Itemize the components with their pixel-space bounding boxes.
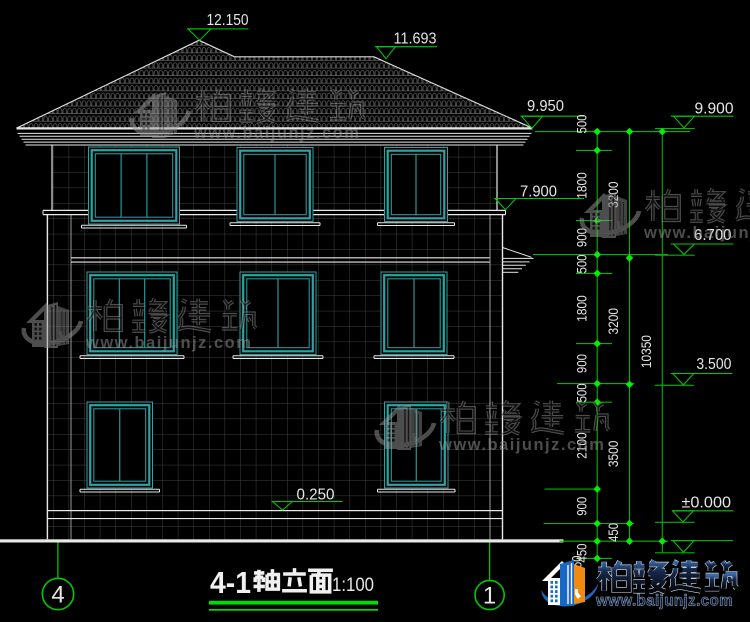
svg-text:1: 1 bbox=[483, 583, 496, 610]
svg-text:900: 900 bbox=[575, 354, 590, 373]
svg-text:500: 500 bbox=[575, 383, 590, 402]
svg-text:3.500: 3.500 bbox=[696, 356, 731, 373]
svg-text:0.250: 0.250 bbox=[297, 487, 335, 504]
svg-text:www.baijunjz.com: www.baijunjz.com bbox=[85, 334, 252, 352]
svg-text:4-1: 4-1 bbox=[210, 565, 251, 600]
svg-text:www.baijunjz.com: www.baijunjz.com bbox=[595, 593, 733, 610]
svg-text:11.693: 11.693 bbox=[394, 31, 437, 48]
svg-text:500: 500 bbox=[575, 255, 590, 274]
svg-text:3200: 3200 bbox=[606, 308, 621, 335]
svg-text:1:100: 1:100 bbox=[332, 575, 374, 596]
svg-text:1800: 1800 bbox=[575, 172, 590, 199]
svg-text:450: 450 bbox=[606, 523, 621, 542]
svg-text:500: 500 bbox=[575, 115, 590, 134]
svg-text:±0.000: ±0.000 bbox=[682, 495, 732, 512]
svg-text:900: 900 bbox=[575, 497, 590, 516]
svg-text:12.150: 12.150 bbox=[207, 12, 249, 29]
svg-text:www.baijunjz.com: www.baijunjz.com bbox=[643, 224, 750, 242]
svg-text:10350: 10350 bbox=[639, 335, 654, 368]
svg-text:9.950: 9.950 bbox=[527, 98, 564, 115]
svg-text:3500: 3500 bbox=[606, 441, 621, 468]
svg-text:9.900: 9.900 bbox=[695, 101, 734, 118]
svg-text:www.baijunjz.com: www.baijunjz.com bbox=[438, 436, 605, 454]
svg-text:4: 4 bbox=[51, 582, 64, 609]
svg-text:7.900: 7.900 bbox=[520, 184, 557, 201]
svg-text:1800: 1800 bbox=[575, 295, 590, 322]
svg-text:www.baijunjz.com: www.baijunjz.com bbox=[193, 124, 360, 142]
